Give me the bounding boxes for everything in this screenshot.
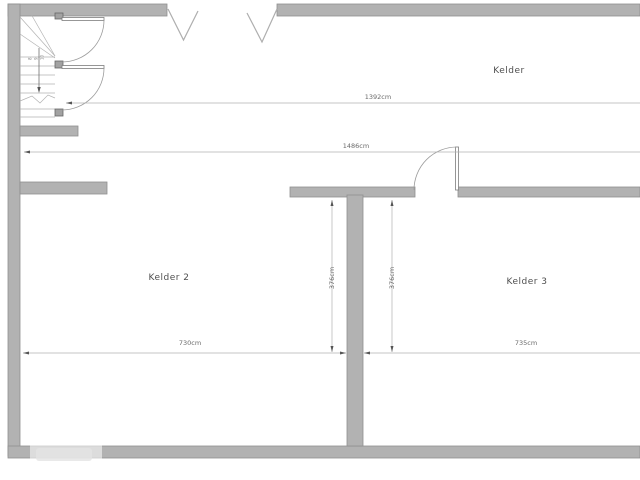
dim-arrow-icon [23, 352, 29, 355]
door-leaf-stair-upper [62, 18, 104, 21]
dim-label-kelder2-depth: 376cm [328, 267, 336, 289]
dimension-lines: 1392cm 1486cm 730cm 735cm 376cm 376cm [23, 93, 640, 355]
window-v-icon [247, 9, 277, 42]
room-label-kelder2: Kelder 2 [148, 273, 189, 283]
doors [62, 18, 459, 191]
dim-arrow-icon [66, 102, 72, 105]
dim-label-kelder3-depth: 376cm [388, 267, 396, 289]
dim-arrow-icon [24, 151, 30, 154]
window-symbols [168, 9, 277, 42]
door-jamb [55, 109, 63, 116]
dim-label-overall-width: 1486cm [343, 142, 369, 150]
wall-left [8, 4, 20, 456]
door-swing-arc [414, 147, 457, 190]
stair-break-line [20, 95, 55, 103]
staircase: 8 9 10 [20, 13, 63, 117]
dim-label-kelder2-width: 730cm [179, 339, 201, 347]
door-leaf-stair-lower [62, 66, 104, 69]
wall-stair-stub [20, 126, 78, 136]
floor-plan-drawing: 8 9 10 1 [0, 0, 640, 480]
floor-plan-canvas: 8 9 10 1 [0, 0, 640, 480]
wall-divider-kelder2-3 [347, 195, 363, 446]
wall-interior-left [20, 182, 107, 194]
dim-arrow-icon [331, 346, 334, 352]
stair-tread-number: 8 [28, 57, 33, 60]
dim-label-kelder3-width: 735cm [515, 339, 537, 347]
dim-arrow-icon [340, 352, 346, 355]
room-label-kelder: Kelder [493, 66, 524, 76]
wall-top-left [8, 4, 167, 16]
stair-tread-number: 10 [40, 54, 45, 60]
wall-top-right [277, 4, 640, 16]
room-label-kelder3: Kelder 3 [506, 277, 547, 287]
dim-arrow-icon [364, 352, 370, 355]
walls [8, 4, 640, 463]
stair-winder-line [20, 34, 55, 58]
stair-tread-number: 9 [34, 57, 39, 60]
dim-arrow-icon [331, 200, 334, 206]
wall-interior-right [458, 187, 640, 197]
stair-direction-arrow-icon [37, 87, 40, 93]
window-v-icon [168, 9, 198, 40]
stair-winder-line [20, 17, 55, 56]
dim-arrow-icon [391, 346, 394, 352]
door-leaf-kelder3 [456, 147, 459, 190]
dim-label-kelder-width: 1392cm [365, 93, 391, 101]
wall-bottom [8, 446, 640, 458]
dim-arrow-icon [391, 200, 394, 206]
door-swing-arc [62, 68, 104, 110]
smudge-mark [36, 448, 92, 461]
door-swing-arc [62, 20, 104, 62]
